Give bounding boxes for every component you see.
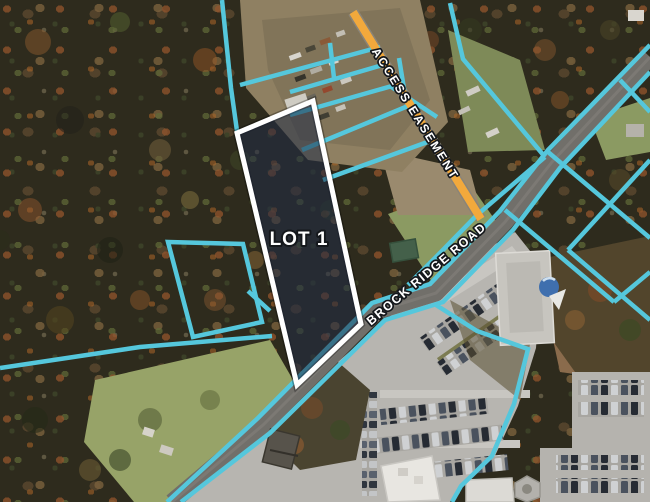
green-roof-house (390, 239, 419, 262)
satellite-parcel-map: LOT 1 ACCESS EASEMENT BROCK RIDGE ROAD (0, 0, 650, 502)
lot1-label: LOT 1 (270, 229, 329, 250)
map-overlay: LOT 1 ACCESS EASEMENT BROCK RIDGE ROAD (0, 0, 650, 502)
